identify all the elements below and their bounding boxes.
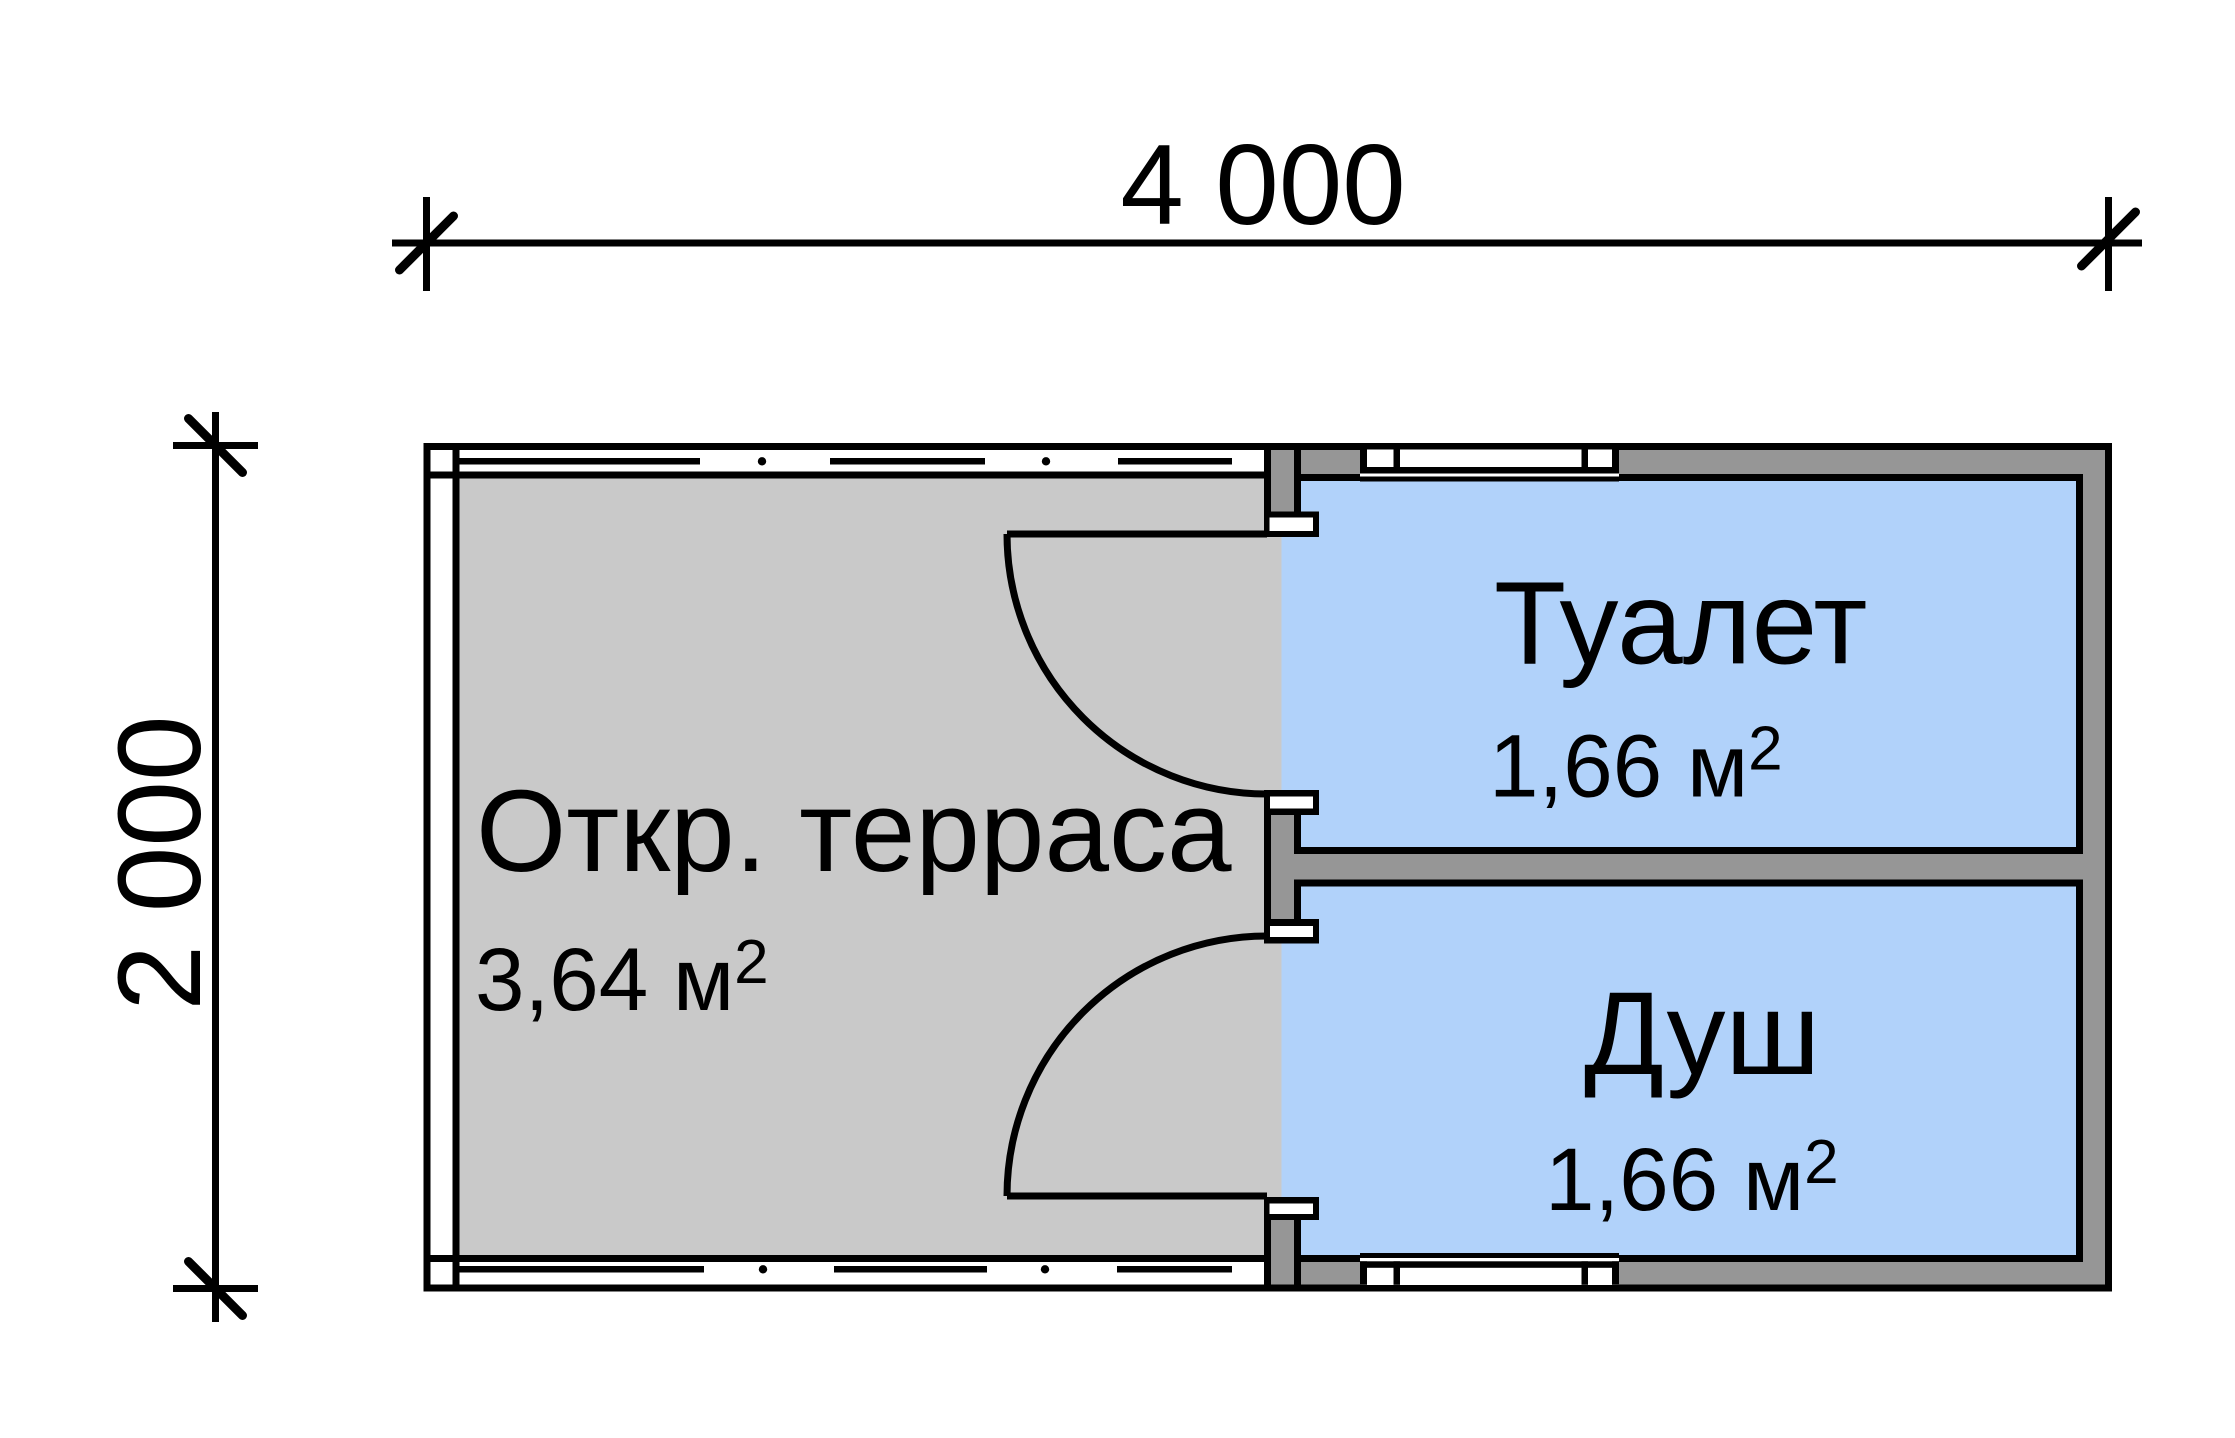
svg-text:2 000: 2 000 — [94, 715, 226, 1010]
svg-text:3,64 м2: 3,64 м2 — [475, 928, 769, 1029]
svg-text:1,66 м2: 1,66 м2 — [1489, 715, 1783, 816]
svg-text:Душ: Душ — [1584, 968, 1820, 1100]
svg-text:4 000: 4 000 — [1120, 122, 1405, 249]
svg-text:Туалет: Туалет — [1494, 558, 1867, 690]
svg-text:1,66 м2: 1,66 м2 — [1545, 1128, 1839, 1229]
svg-text:Откр. терраса: Откр. терраса — [476, 766, 1232, 896]
